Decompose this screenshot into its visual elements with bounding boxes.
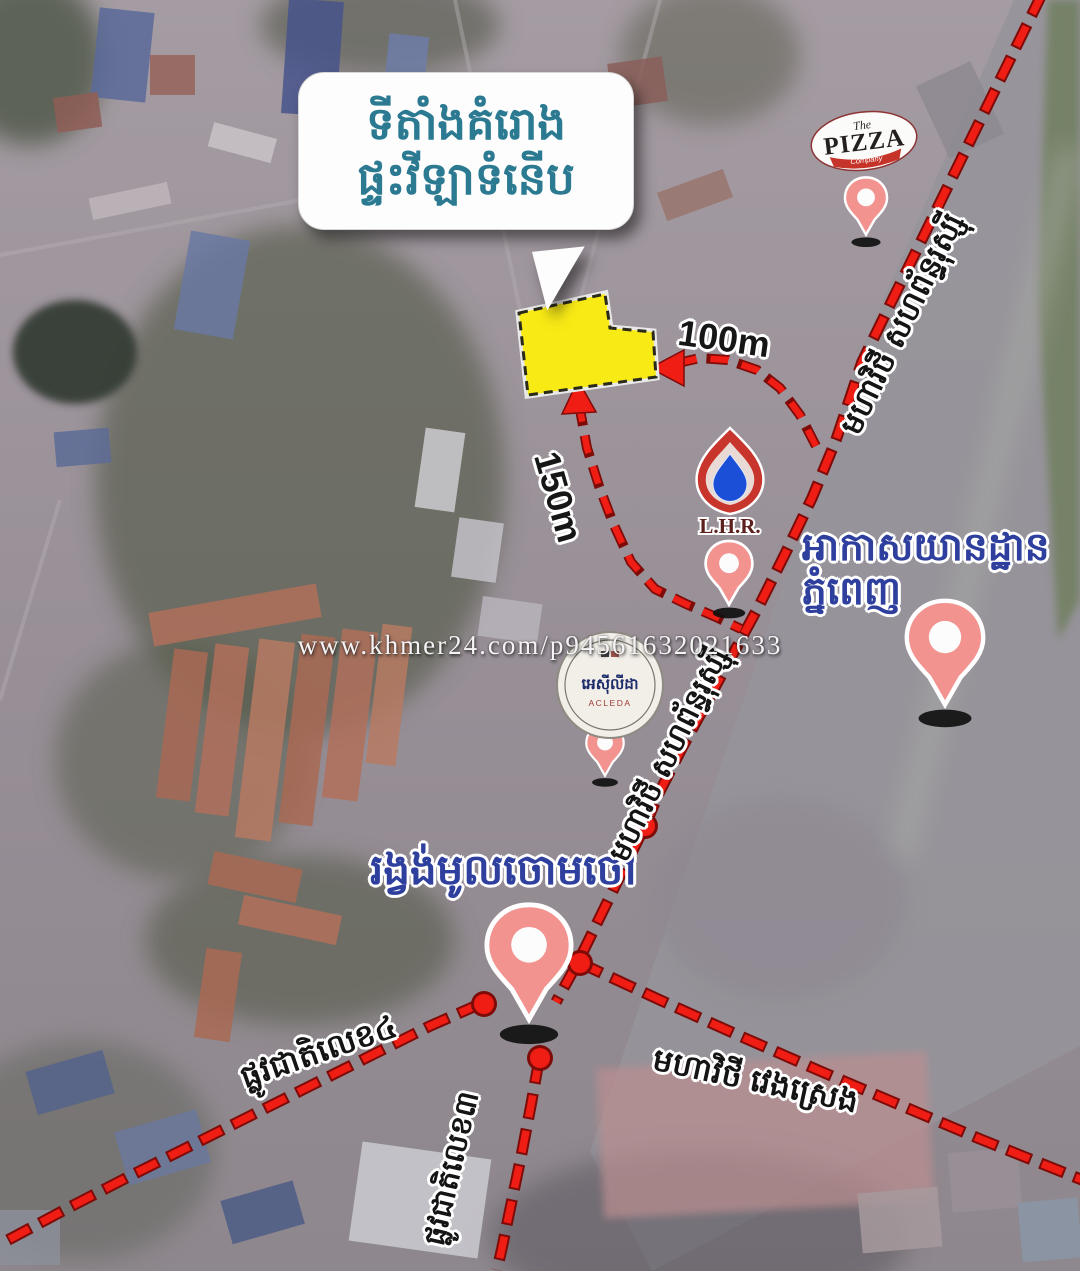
callout-tail: [532, 246, 591, 311]
airport-label-line2: ភ្នំពេញ: [802, 570, 1050, 614]
airport-label-line1: អាកាសយានដ្ឋាន: [802, 526, 1050, 570]
project-callout: ទីតាំងគំរោង ផ្ទះវីឡាទំនើប: [298, 72, 634, 230]
pond: [13, 300, 137, 404]
airport-label: អាកាសយានដ្ឋាន ភ្នំពេញ: [802, 526, 1050, 613]
location-map: The PIZZA Company L.H.R. អេស៊ីលីដា ACLED…: [0, 0, 1080, 1271]
acleda-latin-name: ACLEDA: [588, 698, 631, 708]
khmer24-watermark: www.khmer24.com/p94561632021633: [0, 630, 1080, 661]
urban-shade: [655, 800, 905, 1000]
acleda-khmer-name: អេស៊ីលីដា: [581, 674, 638, 695]
lhr-label: L.H.R.: [699, 514, 760, 538]
callout-line2: ផ្ទះវីឡាទំនើប: [309, 152, 623, 207]
project-callout-bubble: ទីតាំងគំរោង ផ្ទះវីឡាទំនើប: [298, 72, 634, 230]
callout-line1: ទីតាំងគំរោង: [309, 97, 623, 152]
